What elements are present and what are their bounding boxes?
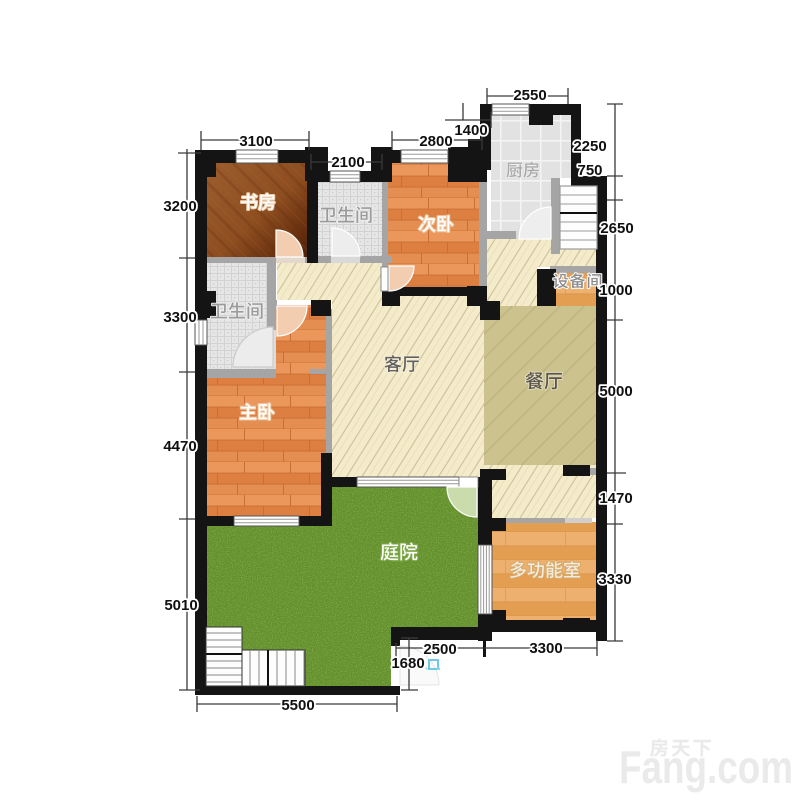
svg-text:5010: 5010: [164, 597, 197, 614]
svg-text:2800: 2800: [419, 133, 452, 150]
svg-text:1000: 1000: [599, 282, 632, 299]
svg-text:3300: 3300: [529, 640, 562, 657]
svg-text:3300: 3300: [163, 309, 196, 326]
svg-text:5500: 5500: [281, 697, 314, 714]
svg-text:2250: 2250: [573, 138, 606, 155]
svg-text:3330: 3330: [598, 571, 631, 588]
svg-text:3200: 3200: [163, 198, 196, 215]
svg-text:4470: 4470: [163, 438, 196, 455]
svg-text:750: 750: [577, 162, 602, 179]
svg-text:3100: 3100: [239, 133, 272, 150]
svg-text:5000: 5000: [599, 383, 632, 400]
svg-text:1680: 1680: [391, 655, 424, 672]
svg-text:2500: 2500: [423, 641, 456, 658]
svg-text:2650: 2650: [600, 220, 633, 237]
svg-text:1470: 1470: [599, 490, 632, 507]
svg-text:2100: 2100: [331, 154, 364, 171]
svg-text:Fang.com: Fang.com: [619, 741, 793, 793]
svg-text:2550: 2550: [513, 87, 546, 104]
svg-text:1400: 1400: [454, 122, 487, 139]
